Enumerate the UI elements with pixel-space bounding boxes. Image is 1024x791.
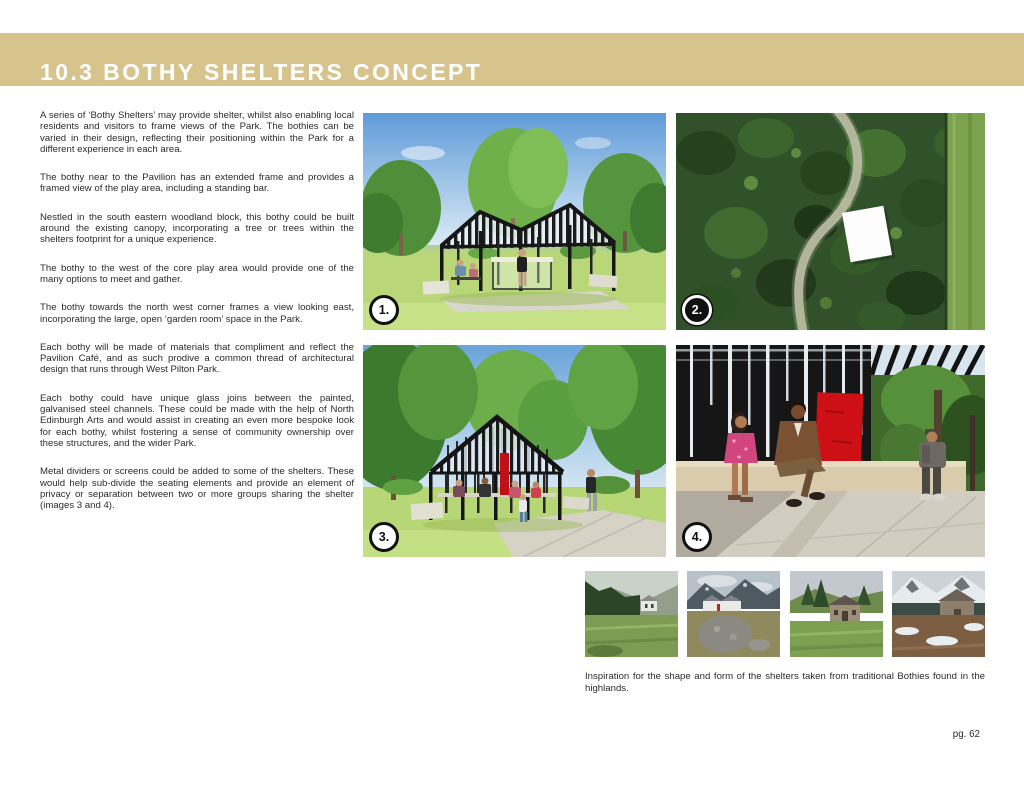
shelter-closeup-illustration bbox=[676, 345, 985, 557]
inspiration-photo-2 bbox=[687, 571, 780, 657]
figure-1-marker: 1. bbox=[369, 295, 399, 325]
figure-4-marker: 4. bbox=[682, 522, 712, 552]
paragraph: Metal dividers or screens could be added… bbox=[40, 466, 354, 511]
figure-2-aerial-map: 2. bbox=[676, 113, 985, 330]
figure-2-marker: 2. bbox=[682, 295, 712, 325]
bothy-render-illustration bbox=[363, 113, 666, 330]
highland-bothy-photo bbox=[687, 571, 780, 657]
report-page: 10.3 BOTHY SHELTERS CONCEPT A series of … bbox=[0, 0, 1024, 791]
inspiration-photo-1 bbox=[585, 571, 678, 657]
aerial-map-illustration bbox=[676, 113, 985, 330]
highland-bothy-photo bbox=[892, 571, 985, 657]
body-text-column: A series of ‘Bothy Shelters’ may provide… bbox=[40, 110, 354, 528]
paragraph: Nestled in the south eastern woodland bl… bbox=[40, 212, 354, 246]
paragraph: Each bothy will be made of materials tha… bbox=[40, 342, 354, 376]
paragraph: The bothy near to the Pavilion has an ex… bbox=[40, 172, 354, 195]
section-header-bar: 10.3 BOTHY SHELTERS CONCEPT bbox=[0, 33, 1024, 86]
figure-1-bothy-render: 1. bbox=[363, 113, 666, 330]
figure-4-shelter-closeup: 4. bbox=[676, 345, 985, 557]
figure-3-bothy-render: 3. bbox=[363, 345, 666, 557]
page-title: 10.3 BOTHY SHELTERS CONCEPT bbox=[40, 61, 482, 84]
inspiration-caption: Inspiration for the shape and form of th… bbox=[585, 671, 985, 694]
highland-bothy-photo bbox=[790, 571, 883, 657]
paragraph: The bothy to the west of the core play a… bbox=[40, 263, 354, 286]
highland-bothy-photo bbox=[585, 571, 678, 657]
page-number: pg. 62 bbox=[953, 729, 980, 740]
bothy-render-illustration bbox=[363, 345, 666, 557]
inspiration-photo-3 bbox=[790, 571, 883, 657]
paragraph: The bothy towards the north west corner … bbox=[40, 302, 354, 325]
figure-3-marker: 3. bbox=[369, 522, 399, 552]
paragraph: Each bothy could have unique glass joins… bbox=[40, 393, 354, 449]
paragraph: A series of ‘Bothy Shelters’ may provide… bbox=[40, 110, 354, 155]
inspiration-thumbnails-row bbox=[585, 571, 985, 657]
inspiration-photo-4 bbox=[892, 571, 985, 657]
